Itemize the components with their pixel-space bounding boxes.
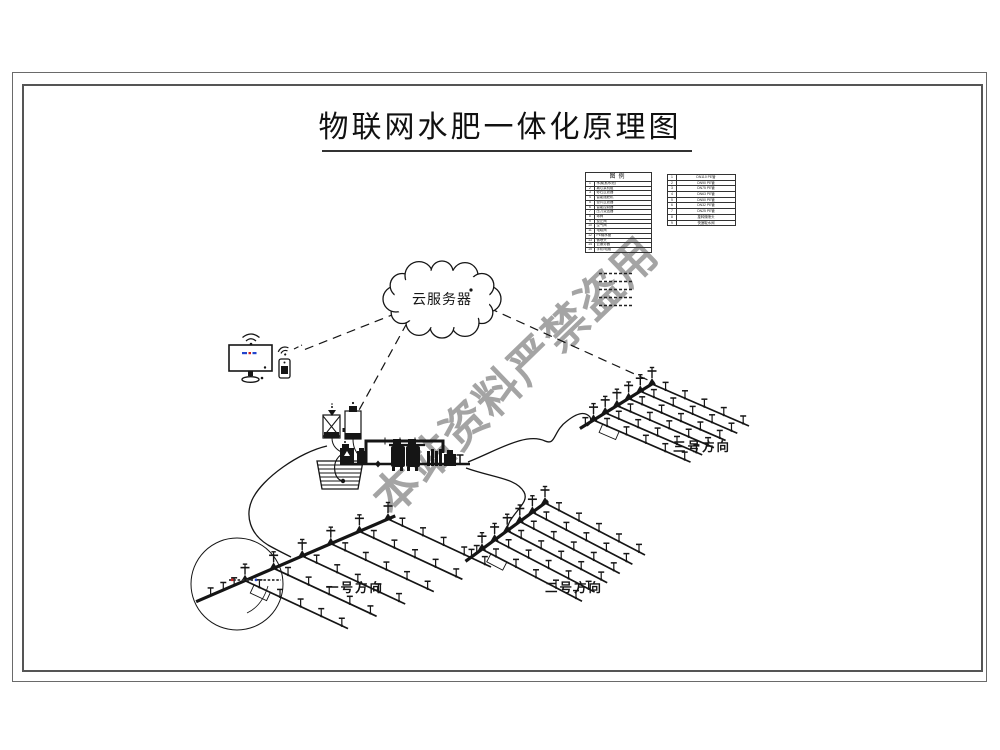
legend-table-rows: 1水源(蓄水池)2离心泵机组3砂石过滤器4智能施肥机5叠片过滤器6智能控制器7压… xyxy=(586,182,651,252)
legend-table: 图例 1水源(蓄水池)2离心泵机组3砂石过滤器4智能施肥机5叠片过滤器6智能控制… xyxy=(585,172,652,253)
pipe-spec-table: 1DN110 PE管2DN90 PE管3DN75 PE管4DN63 PE管5DN… xyxy=(667,174,736,226)
pipe-spec-table-rows: 1DN110 PE管2DN90 PE管3DN75 PE管4DN63 PE管5DN… xyxy=(668,175,735,225)
legend-row: 9快速取水阀 xyxy=(668,221,735,226)
drawing-sheet: 本站资料严禁盗用 物联网水肥一体化原理图 图例 1水源(蓄水池)2离心泵机组3砂… xyxy=(0,0,1000,750)
title-underline xyxy=(322,150,692,152)
drawing-title: 物联网水肥一体化原理图 xyxy=(0,102,1000,146)
legend-row: 15手机/电脑 xyxy=(586,248,651,252)
legend-table-header: 图例 xyxy=(586,173,651,182)
